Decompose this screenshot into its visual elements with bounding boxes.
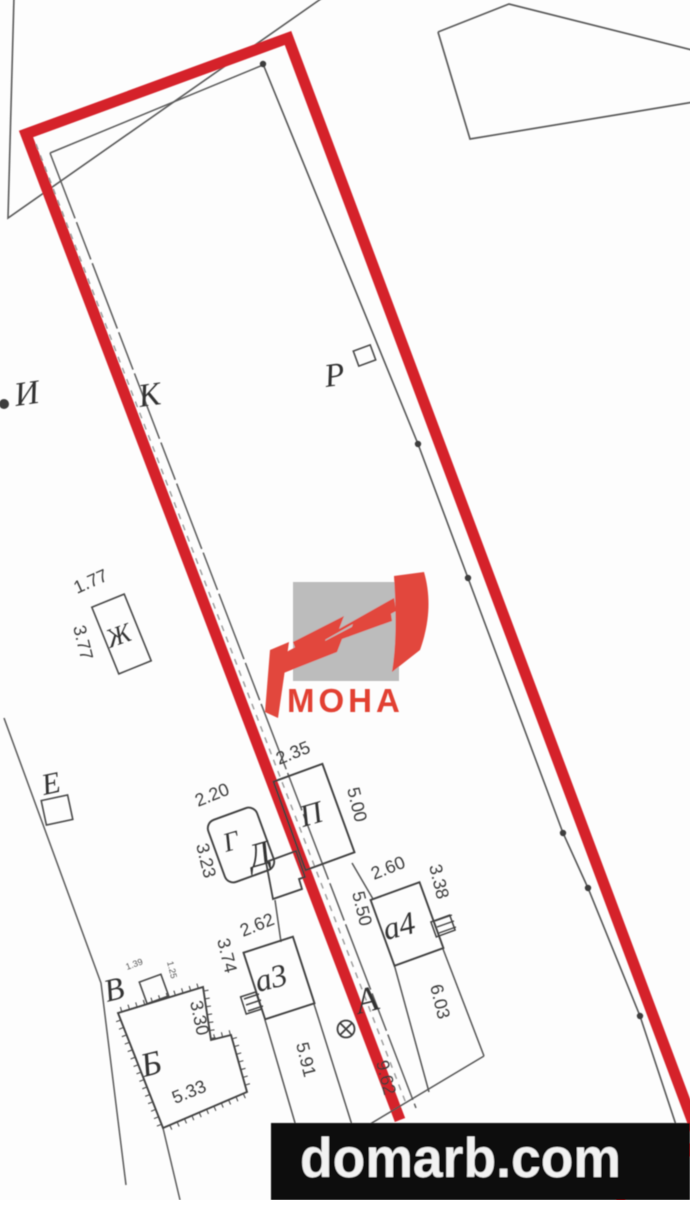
svg-text:domarb.com: domarb.com [300, 1126, 621, 1189]
svg-text:МОНА: МОНА [287, 682, 404, 719]
